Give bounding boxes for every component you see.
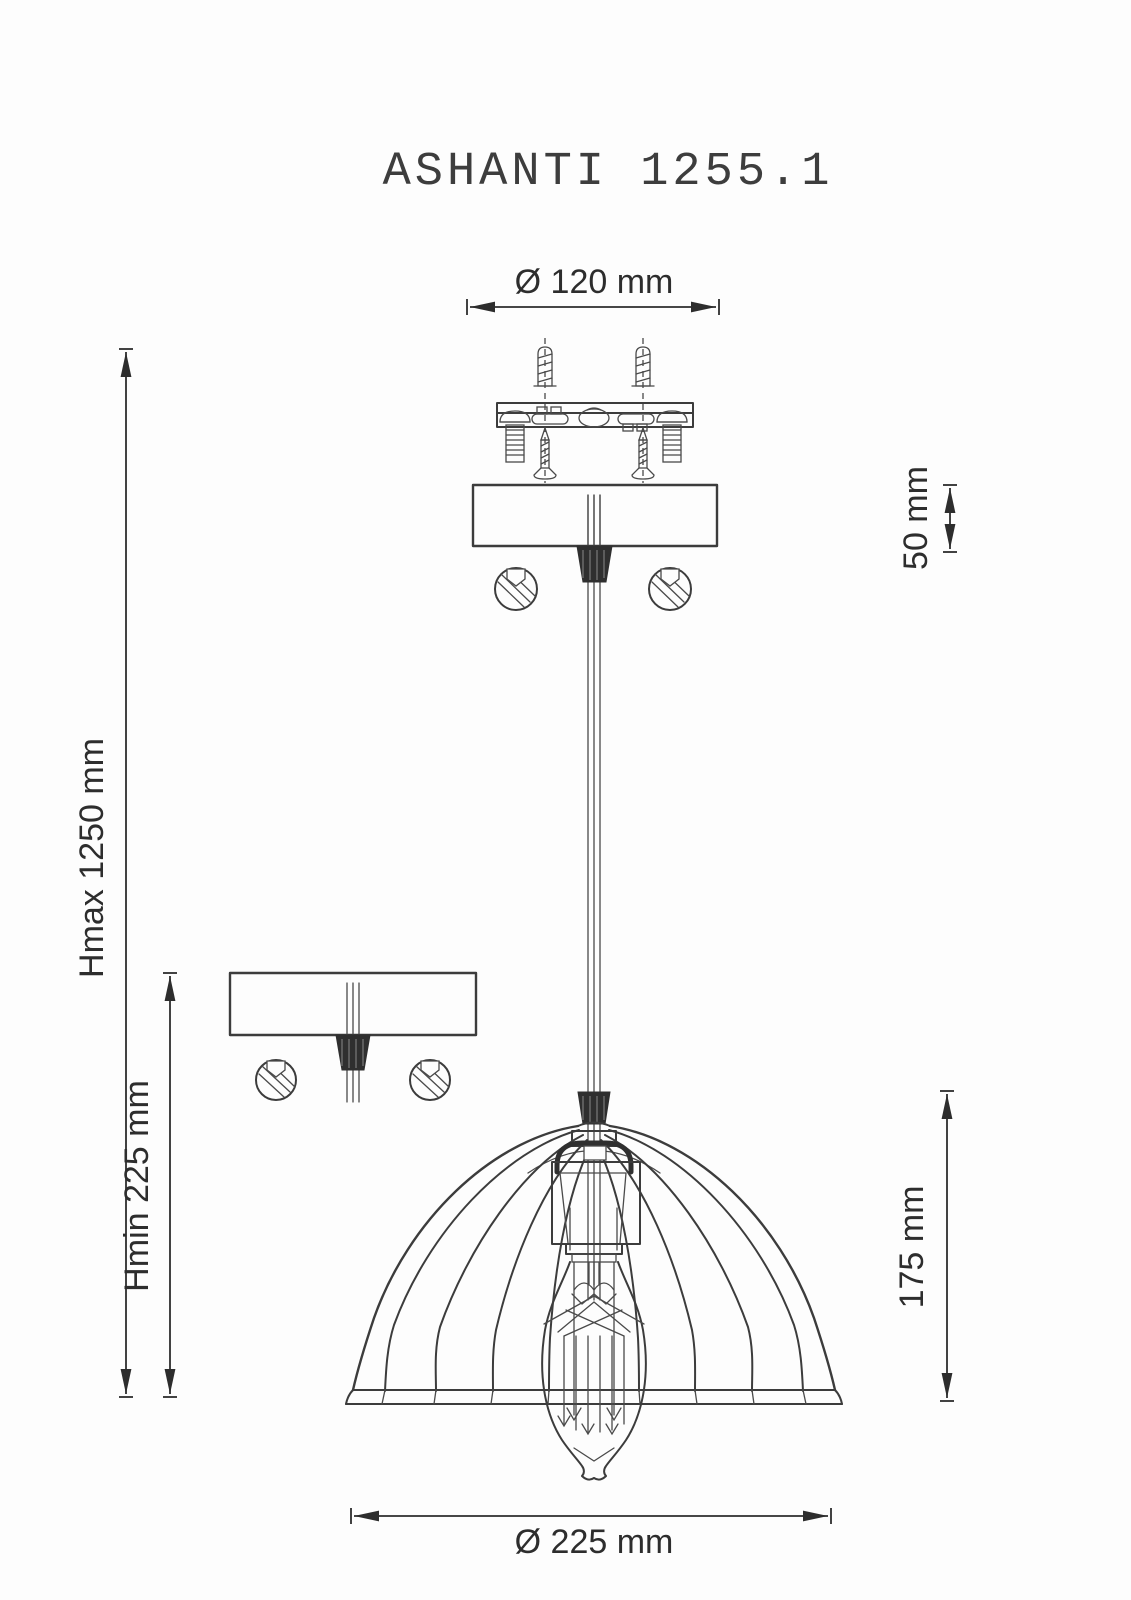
- shade-height-dimension: 175 mm: [893, 1091, 954, 1401]
- mounting-bracket-drawing: [497, 338, 693, 483]
- decorative-knob: [649, 568, 691, 610]
- bolt-icon: [500, 411, 530, 462]
- shade-outline-right: [610, 1126, 835, 1390]
- mount-diameter-dimension: Ø 120 mm: [467, 263, 719, 315]
- decorative-knob: [495, 568, 537, 610]
- canopy-body: [473, 485, 717, 546]
- shade-outline-left: [353, 1126, 578, 1390]
- shade-diameter-dimension: Ø 225 mm: [351, 1508, 831, 1561]
- cord-grip: [577, 546, 612, 582]
- decorative-knob: [410, 1060, 450, 1100]
- diagram-canvas: ASHANTI 1255.1 Ø 120 mm: [0, 0, 1131, 1600]
- shade-diameter-label: Ø 225 mm: [515, 1523, 674, 1561]
- min-height-canopy-drawing: [230, 973, 476, 1102]
- hmin-label: Hmin 225 mm: [118, 1080, 156, 1292]
- decorative-knob: [256, 1060, 296, 1100]
- product-title: ASHANTI 1255.1: [383, 146, 834, 199]
- canopy-height-label: 50 mm: [897, 466, 935, 570]
- keyhole-slot: [618, 414, 654, 424]
- cord-grip: [336, 1035, 370, 1070]
- canopy-drawing: [473, 485, 717, 610]
- mount-diameter-label: Ø 120 mm: [515, 263, 674, 301]
- bulb-drawing: [542, 1262, 646, 1480]
- keyhole-slot: [532, 414, 568, 424]
- suspension-cable: [588, 495, 600, 1300]
- canopy-height-dimension: 50 mm: [897, 466, 957, 570]
- bolt-icon: [657, 411, 687, 462]
- hmax-label: Hmax 1250 mm: [73, 738, 111, 978]
- center-hole: [579, 409, 609, 427]
- shade-rim: [346, 1390, 842, 1404]
- shade-height-label: 175 mm: [893, 1186, 931, 1309]
- technical-drawing-page: ASHANTI 1255.1 Ø 120 mm: [0, 0, 1131, 1600]
